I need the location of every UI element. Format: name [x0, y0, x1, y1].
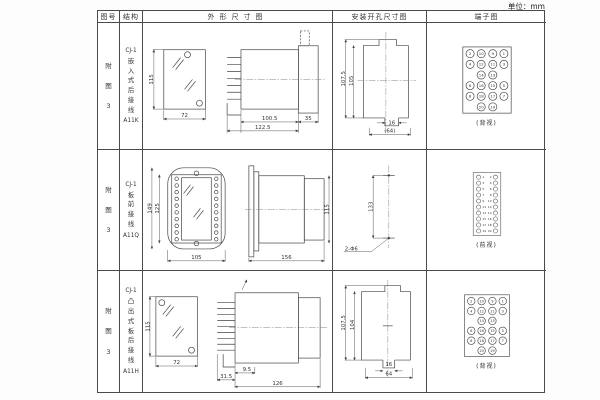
row1-mounting-cell: 107.5 105 16 (64)	[333, 23, 427, 150]
svg-text:20: 20	[479, 349, 484, 353]
svg-text:9: 9	[482, 199, 484, 203]
svg-text:2: 2	[468, 51, 471, 56]
svg-text:16: 16	[479, 329, 484, 333]
row1-side-view: 100.5 35 122.5	[227, 31, 326, 133]
svg-text:8: 8	[470, 339, 473, 343]
dim-hole-pitch: 133	[368, 202, 374, 212]
svg-text:5: 5	[502, 83, 505, 88]
dim-side-height: 115	[324, 204, 330, 214]
svg-text:12: 12	[479, 309, 484, 313]
svg-text:17: 17	[490, 339, 495, 343]
svg-text:14: 14	[479, 319, 484, 323]
svg-text:8: 8	[468, 94, 471, 99]
dim-mount-h1: 16	[388, 121, 395, 127]
row2-type-code: A11Q	[123, 233, 139, 239]
row2-structure: CJ-1 板前接线 A11Q	[120, 150, 143, 271]
header-structure: 结构	[120, 11, 143, 23]
row1-terminal-view-label: (背视)	[476, 118, 497, 127]
dim-mount-h2: 64	[385, 372, 392, 378]
terminal-blades	[217, 302, 235, 349]
svg-text:2: 2	[470, 299, 472, 303]
row2-mounting-drawing: 133 2-Φ6	[334, 150, 426, 269]
row1-structure: CJ-1 嵌入式后接线 A11K	[120, 23, 143, 150]
top-leader-arrow	[241, 280, 246, 290]
svg-text:15: 15	[490, 83, 495, 88]
glass-hatch-marks	[162, 304, 183, 338]
row1-outline-drawing: 115 72 100.5 35	[144, 24, 332, 149]
svg-text:8: 8	[489, 193, 491, 197]
row3-terminal-cell: 1012141618209111315171924681357 (背视)	[427, 271, 546, 392]
row3-type-code: A11H	[123, 369, 139, 375]
svg-text:14: 14	[478, 73, 483, 78]
dim-depth: 126	[272, 380, 283, 386]
row2-terminal-cell: 1357911131517192468101214161820 (前视)	[427, 150, 546, 271]
svg-text:10: 10	[478, 51, 483, 56]
svg-text:2: 2	[489, 175, 491, 179]
spec-table: 图号 结构 外形尺寸图 安装开孔尺寸图 端子图 附图3 CJ-1 嵌入式后接线 …	[97, 10, 545, 393]
svg-text:7: 7	[501, 339, 503, 343]
svg-text:14: 14	[487, 211, 491, 215]
svg-text:11: 11	[490, 309, 495, 313]
row2-front-view: 149 125 105	[147, 167, 225, 261]
dim-step: 9.5	[242, 367, 251, 373]
terminal-blades	[227, 57, 241, 99]
row3-mounting-drawing: 107.5 104 16 64	[334, 272, 426, 390]
row3-side-view: 9.5 31.5 126	[217, 280, 328, 388]
row1-front-view: 115 72	[148, 49, 204, 119]
header-terminal: 端子图	[427, 11, 546, 23]
row2-fig-no: 附图3	[98, 150, 120, 271]
dim-blade: 31.5	[220, 373, 232, 379]
row3-structure-desc: 凸出式板后接线	[126, 297, 135, 365]
row2-side-view: 156 115	[244, 165, 330, 261]
svg-text:4: 4	[468, 62, 471, 67]
dim-depth1: 100.5	[261, 116, 277, 122]
dim-front-height: 115	[145, 321, 151, 331]
dim-h-inner: 125	[154, 203, 160, 213]
svg-text:4: 4	[489, 181, 491, 185]
row2-outline-cell: 149 125 105 156	[143, 150, 333, 271]
row1-outline-cell: 115 72 100.5 35	[143, 23, 333, 150]
svg-text:7: 7	[482, 193, 484, 197]
dim-depth: 156	[281, 254, 292, 260]
document-page: 单位：mm 图号 结构 外形尺寸图 安装开孔尺寸图 端子图 附图3 CJ-1 嵌…	[0, 0, 600, 400]
row1-terminal-diagram: 1012141618209111315171924681357	[458, 45, 516, 115]
row3-outline-cell: 115 72 9.5 31.5	[143, 271, 333, 392]
svg-text:19: 19	[490, 104, 495, 109]
dim-h-outer: 149	[147, 202, 153, 213]
row3-model: CJ-1	[125, 288, 136, 294]
svg-text:5: 5	[501, 329, 503, 333]
svg-text:16: 16	[487, 217, 491, 221]
svg-text:11: 11	[490, 62, 495, 67]
svg-text:4: 4	[470, 309, 473, 313]
svg-text:11: 11	[482, 205, 486, 209]
dim-mount-v2: 105	[349, 76, 355, 86]
glass-hatch-marks	[172, 57, 195, 91]
row2-mounting-cell: 133 2-Φ6	[333, 150, 427, 271]
svg-text:18: 18	[487, 223, 491, 227]
svg-text:19: 19	[482, 229, 486, 233]
svg-text:6: 6	[468, 83, 471, 88]
header-mounting: 安装开孔尺寸图	[333, 11, 427, 23]
svg-text:10: 10	[487, 199, 491, 203]
hole-spec-label: 2-Φ6	[344, 247, 358, 253]
row1-mounting-drawing: 107.5 105 16 (64)	[334, 24, 426, 147]
svg-text:15: 15	[490, 329, 495, 333]
dim-width: 105	[191, 254, 201, 260]
dim-mount-v1: 107.5	[340, 71, 346, 86]
terminal-circles: 1012141618209111315171924681357	[467, 297, 506, 354]
dim-front-width: 72	[173, 360, 180, 366]
svg-text:1: 1	[482, 175, 484, 179]
row1-structure-desc: 嵌入式后接线	[127, 57, 136, 116]
svg-text:3: 3	[482, 181, 484, 185]
svg-text:20: 20	[487, 229, 491, 233]
svg-text:16: 16	[478, 83, 483, 88]
header-outline: 外形尺寸图	[143, 11, 333, 23]
svg-text:13: 13	[490, 73, 495, 78]
row3-fig-no: 附图3	[98, 271, 120, 392]
cutout-contour	[361, 286, 410, 368]
dim-mount-v2: 104	[350, 319, 356, 330]
row2-terminal-view-label: (前视)	[476, 240, 497, 249]
svg-text:7: 7	[502, 94, 505, 99]
svg-text:1: 1	[502, 51, 505, 56]
row3-outline-drawing: 115 72 9.5 31.5	[144, 273, 332, 391]
svg-text:6: 6	[470, 329, 473, 333]
dim-front-width: 72	[181, 113, 188, 119]
svg-text:5: 5	[482, 187, 484, 191]
row1-fig-no: 附图3	[98, 23, 120, 150]
header-fig-no: 图号	[98, 11, 120, 23]
row2-outline-drawing: 149 125 105 156	[144, 152, 332, 269]
svg-text:12: 12	[487, 205, 491, 209]
svg-text:19: 19	[490, 349, 495, 353]
handle-dashed	[300, 31, 309, 46]
svg-text:18: 18	[479, 339, 484, 343]
svg-text:15: 15	[482, 217, 486, 221]
dim-mount-h1: 16	[385, 362, 392, 368]
dim-mount-v1: 107.5	[340, 315, 346, 330]
row1-terminal-cell: 1012141618209111315171924681357 (背视)	[427, 23, 546, 150]
row3-structure: CJ-1 凸出式板后接线 A11H	[120, 271, 143, 392]
row2-terminal-diagram: 1357911131517192468101214161820	[464, 171, 510, 237]
svg-text:13: 13	[482, 211, 486, 215]
svg-text:18: 18	[478, 94, 483, 99]
dim-mount-h2: (64)	[384, 129, 395, 135]
svg-text:17: 17	[490, 94, 495, 99]
terminal-circles: 1012141618209111315171924681357	[466, 50, 508, 111]
dim-depth2: 122.5	[254, 125, 270, 131]
svg-text:20: 20	[478, 104, 483, 109]
svg-text:3: 3	[501, 309, 503, 313]
glass-hatch-marks	[183, 184, 203, 219]
svg-text:6: 6	[489, 187, 491, 191]
dim-front-height: 115	[148, 74, 154, 84]
svg-text:12: 12	[478, 62, 483, 67]
svg-text:13: 13	[490, 319, 495, 323]
svg-text:10: 10	[479, 299, 484, 303]
svg-text:9: 9	[491, 299, 494, 303]
terminal-circles: 1357911131517192468101214161820	[476, 175, 497, 233]
dim-flange: 35	[304, 116, 311, 122]
svg-text:1: 1	[501, 299, 503, 303]
row1-model: CJ-1	[125, 48, 136, 54]
row3-terminal-view-label: (背视)	[476, 361, 497, 370]
svg-text:3: 3	[502, 62, 505, 67]
svg-text:17: 17	[482, 223, 486, 227]
row3-front-view: 115 72	[145, 296, 197, 366]
row2-structure-desc: 板前接线	[127, 191, 136, 230]
svg-text:9: 9	[491, 51, 494, 56]
row3-terminal-diagram: 1012141618209111315171924681357	[460, 293, 514, 358]
row2-model: CJ-1	[125, 182, 136, 188]
row3-mounting-cell: 107.5 104 16 64	[333, 271, 427, 392]
row1-type-code: A11K	[123, 118, 138, 124]
